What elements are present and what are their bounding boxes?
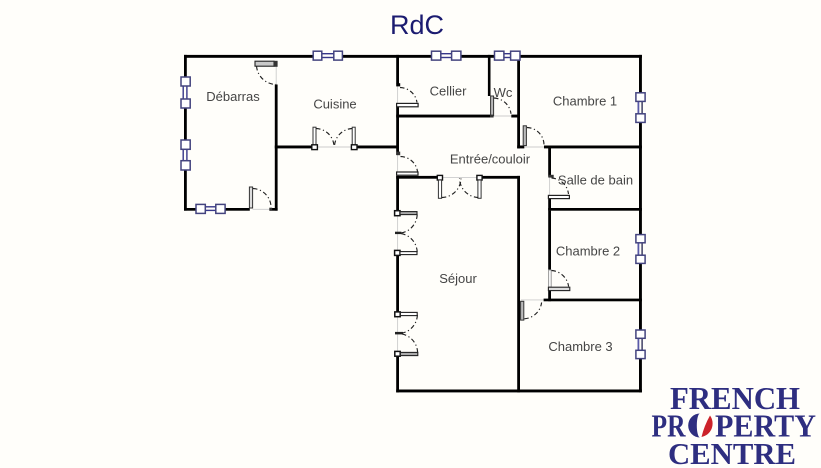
svg-text:Chambre 2: Chambre 2 [556, 244, 620, 259]
svg-text:Chambre 1: Chambre 1 [553, 94, 617, 109]
svg-text:Séjour: Séjour [439, 271, 477, 286]
svg-text:Wc: Wc [494, 85, 513, 100]
svg-text:Débarras: Débarras [206, 89, 260, 104]
svg-text:RdC: RdC [390, 10, 444, 40]
svg-text:Cuisine: Cuisine [313, 97, 356, 112]
svg-text:Cellier: Cellier [430, 84, 468, 99]
svg-text:Entrée/couloir: Entrée/couloir [450, 152, 531, 167]
svg-text:Chambre 3: Chambre 3 [548, 339, 612, 354]
svg-text:Salle de bain: Salle de bain [558, 173, 633, 188]
svg-text:CENTRE: CENTRE [668, 436, 796, 468]
